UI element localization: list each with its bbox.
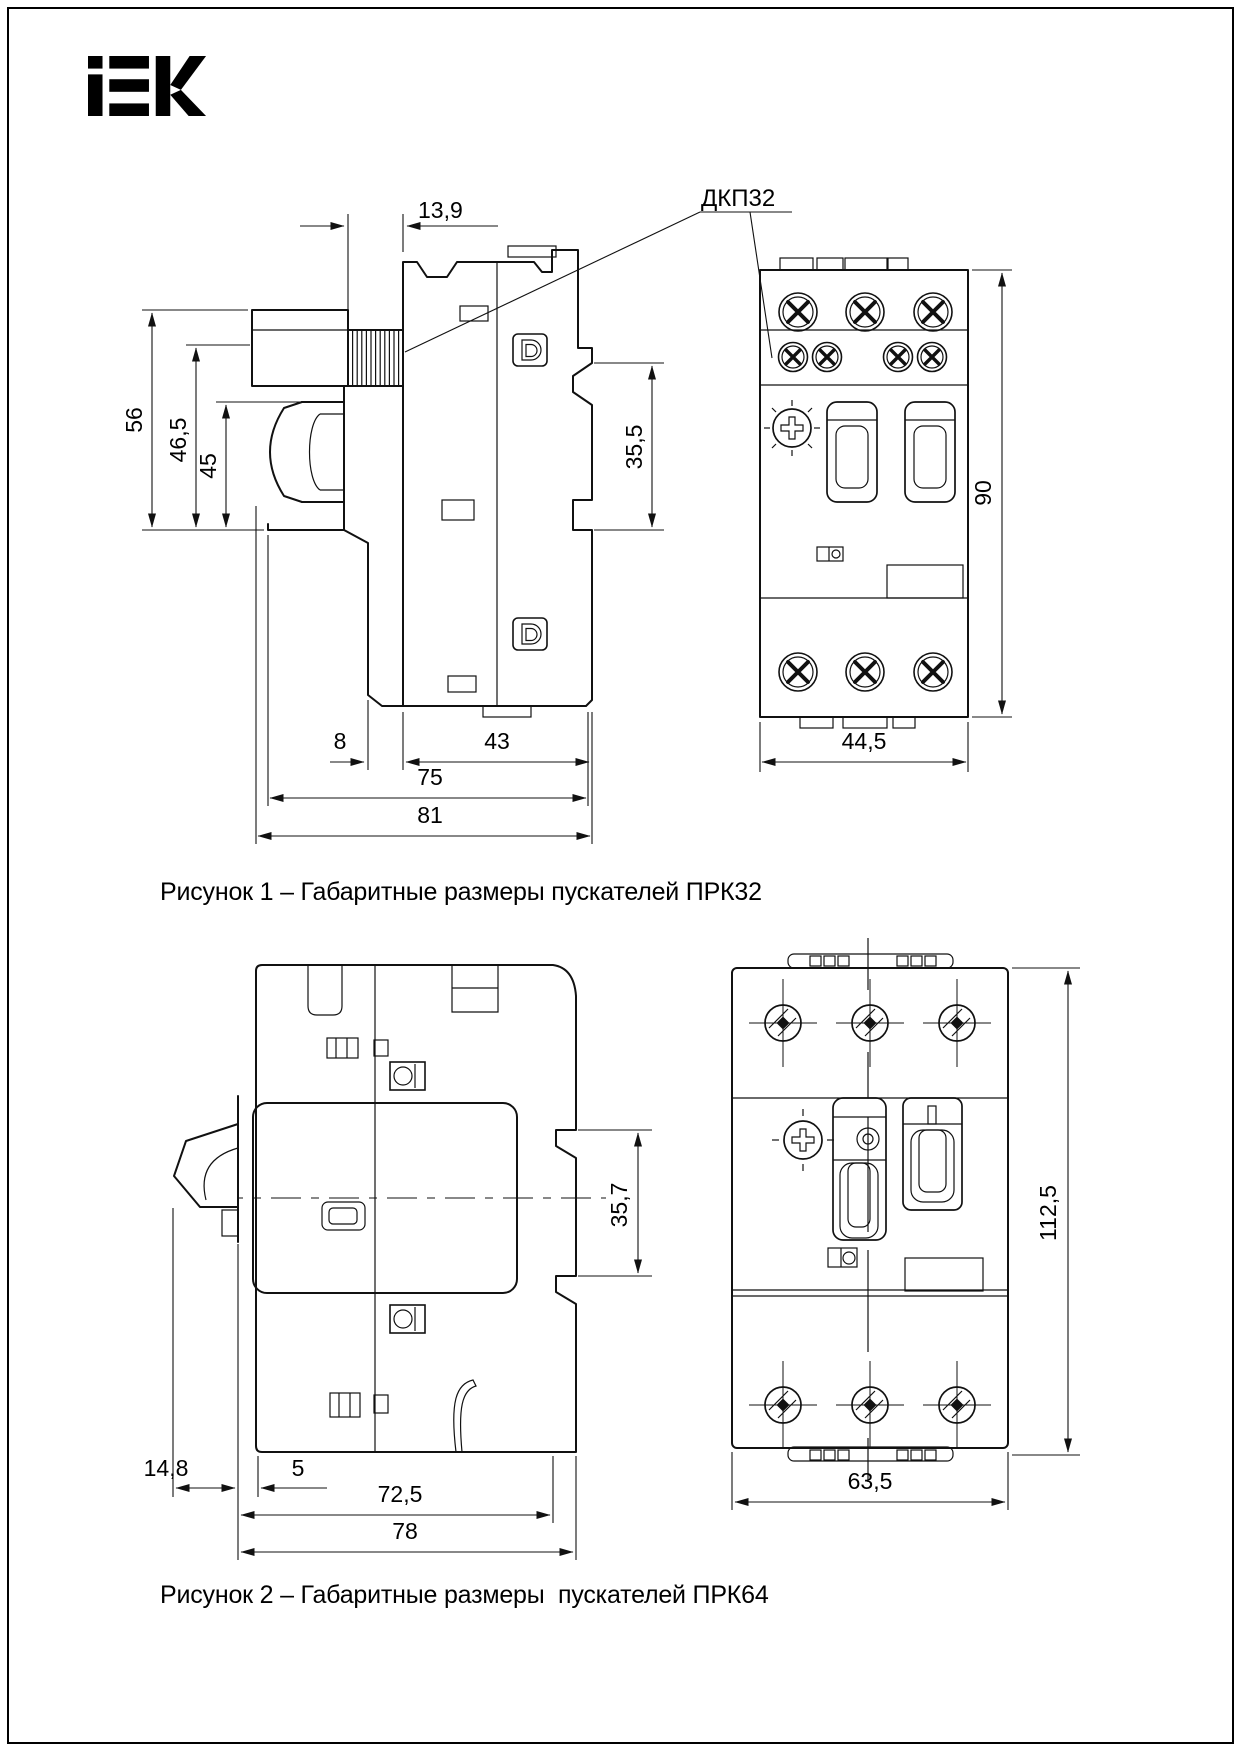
dim-depth-75: 75	[417, 764, 443, 790]
vent-slot	[448, 676, 476, 692]
dim-height-total: 56	[121, 407, 147, 433]
figure1-caption: Рисунок 1 – Габаритные размеры пускателе…	[160, 878, 762, 907]
dim-front-height: 90	[970, 480, 996, 506]
start-button	[827, 402, 877, 502]
callout-dkp32: ДКП32	[405, 185, 792, 358]
figure1-side-view	[252, 246, 592, 717]
release-lever	[174, 1096, 238, 1242]
dim-rear-depth: 43	[484, 728, 510, 754]
callout-label: ДКП32	[701, 185, 775, 212]
figure1-side-dimensions: 13,9 56 46,5 45 35,5 8	[121, 197, 664, 844]
dim-din-recess: 35,7	[606, 1183, 632, 1228]
prk64-side-outline	[256, 965, 576, 1452]
bottom-tab	[483, 706, 531, 717]
prk32-front-body	[760, 270, 968, 717]
din-clip-tab	[508, 246, 556, 257]
dim-front-step: 8	[334, 728, 347, 754]
document-page: 13,9 56 46,5 45 35,5 8	[0, 0, 1241, 1751]
dim-depth-total: 78	[392, 1518, 418, 1544]
aux-contact-slot	[327, 1038, 388, 1058]
terminal-cover	[252, 310, 348, 386]
dim-lever-depth: 14,8	[144, 1455, 189, 1481]
bottom-tab	[893, 717, 915, 728]
top-tab	[817, 258, 843, 270]
stop-button-column	[903, 1098, 962, 1210]
figure2-front-view: 112,5 63,5	[732, 938, 1080, 1510]
dim-din-recess: 35,5	[621, 425, 647, 470]
figure2-side-view	[174, 965, 606, 1452]
adjustment-dial-icon	[772, 1109, 834, 1171]
dim-front-width: 44,5	[842, 728, 887, 754]
dim-front-height: 112,5	[1035, 1185, 1061, 1241]
top-tab	[780, 258, 813, 270]
bottom-tabs	[810, 1450, 936, 1460]
dim-height-knob: 45	[195, 453, 221, 479]
dim-height-lip: 46,5	[165, 418, 191, 463]
dim-depth-body: 72,5	[378, 1481, 423, 1507]
label-area	[887, 565, 963, 598]
terminal-ribs	[353, 330, 399, 386]
bottom-tab	[843, 717, 887, 728]
stop-button	[905, 402, 955, 502]
bottom-tab	[800, 717, 833, 728]
vent-slot	[442, 500, 474, 520]
callout-leader-line	[405, 212, 700, 352]
knob-profile	[270, 402, 302, 502]
adjustment-dial-icon	[764, 400, 820, 456]
trip-indicator	[828, 1248, 857, 1267]
dim-terminal-width: 13,9	[418, 197, 463, 223]
top-tabs	[810, 956, 936, 966]
dim-depth-total: 81	[417, 802, 443, 828]
figure2-caption: Рисунок 2 – Габаритные размеры пускателе…	[160, 1581, 769, 1610]
label-area	[905, 1258, 983, 1291]
knob-inner-arc	[310, 414, 321, 490]
test-button-column	[833, 1098, 886, 1240]
top-tab	[888, 258, 908, 270]
dim-front-width: 63,5	[848, 1468, 893, 1494]
lower-aux-slot	[330, 1393, 388, 1417]
trip-indicator	[817, 547, 843, 561]
lower-front-profile	[268, 524, 403, 706]
technical-drawing: 13,9 56 46,5 45 35,5 8	[0, 0, 1241, 1751]
dim-panel-gap: 5	[292, 1455, 305, 1481]
bottom-slot-curve	[454, 1380, 476, 1452]
top-recess-u	[308, 965, 342, 1015]
top-recess-rect	[452, 965, 498, 1012]
figure1-front-view: 90 44,5	[760, 258, 1012, 772]
bottom-plateau	[788, 1447, 953, 1461]
top-tab	[845, 258, 887, 270]
